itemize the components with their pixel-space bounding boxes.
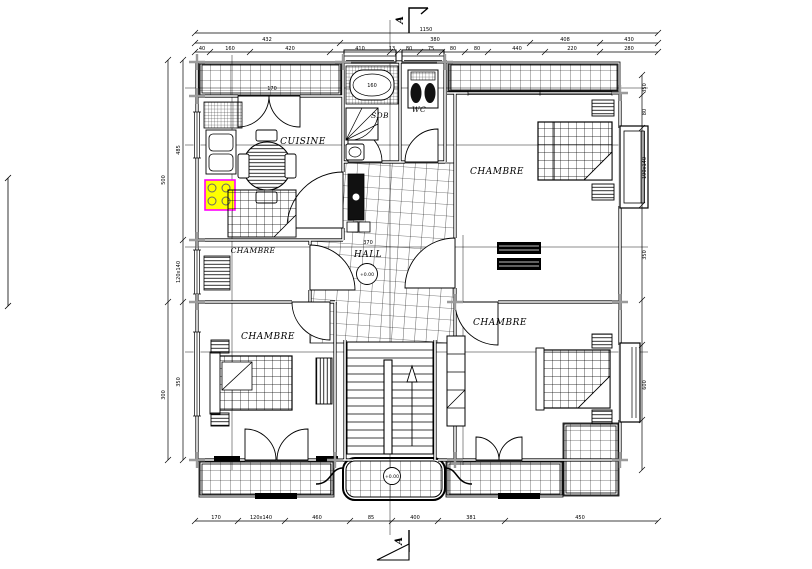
toilet-cistern (411, 72, 435, 80)
section-marker-bottom: A (377, 530, 409, 560)
dim-hall-width: 370 (363, 240, 373, 246)
hall-level-text: +0.00 (360, 272, 374, 278)
balcony-top-right-tiles (449, 64, 618, 91)
kitchen-counter (204, 102, 242, 128)
hall-level-marker: +0.00 (357, 264, 378, 285)
column-cross (612, 294, 628, 310)
entrance-level-marker: +0.00 (384, 468, 401, 485)
nightstand (592, 410, 612, 424)
svg-text:220: 220 (567, 46, 577, 52)
door-french-bl-leaf1 (245, 429, 276, 460)
wc-fixtures (408, 70, 438, 108)
door-balcony-left-leaf1 (238, 96, 269, 127)
label-wc: WC (412, 105, 426, 114)
doormat-terrace-left (255, 493, 297, 499)
door-chambre-bottom-left (292, 302, 330, 340)
svg-text:350: 350 (642, 250, 648, 260)
floor-plan-page: +0.00 +0.00 CUISINE SDB WC CHAMBRE CHAMB… (0, 0, 812, 569)
svg-text:170: 170 (211, 515, 221, 521)
svg-text:300: 300 (161, 390, 167, 400)
svg-text:410: 410 (355, 46, 365, 52)
svg-text:400: 400 (410, 515, 420, 521)
svg-text:160: 160 (225, 46, 235, 52)
svg-text:450: 450 (575, 515, 585, 521)
svg-text:80: 80 (450, 46, 456, 52)
nightstand (211, 413, 229, 426)
section-letter-top: A (395, 16, 406, 25)
svg-text:280: 280 (624, 46, 634, 52)
door-terrace-br-leaf1 (476, 437, 499, 460)
terrace-bottom-center-tiles (447, 462, 562, 495)
svg-text:350: 350 (176, 377, 182, 387)
radiator (204, 256, 230, 290)
door-terrace-br-leaf2 (499, 437, 522, 460)
svg-text:75: 75 (428, 46, 434, 52)
svg-text:600: 600 (642, 380, 648, 390)
nightstand (592, 334, 612, 348)
sill-bottom-left (214, 456, 240, 461)
dresser (497, 242, 541, 254)
toilet-bowl-2 (425, 83, 436, 103)
svg-text:80: 80 (406, 46, 412, 52)
svg-text:120x140: 120x140 (250, 515, 272, 521)
floor-plan-svg: +0.00 +0.00 CUISINE SDB WC CHAMBRE CHAMB… (0, 0, 812, 569)
svg-text:80: 80 (474, 46, 480, 52)
bed-top-right (497, 100, 614, 270)
terrace-bottom-left-tiles (200, 462, 333, 495)
column-cross (189, 294, 205, 310)
svg-text:432: 432 (262, 37, 272, 43)
window-left-chambre-bottom (193, 332, 201, 416)
toilet-bowl-1 (411, 83, 422, 103)
dim-bathtub: 160 (367, 83, 377, 89)
dining-table (243, 142, 291, 190)
entrance-level-text: +0.00 (385, 474, 399, 480)
label-chambre-top-right: CHAMBRE (470, 167, 524, 177)
svg-text:40: 40 (199, 46, 205, 52)
svg-text:485: 485 (176, 145, 182, 155)
svg-text:380: 380 (430, 37, 440, 43)
section-letter-bottom: A (394, 537, 405, 546)
svg-text:381: 381 (466, 515, 476, 521)
svg-text:430: 430 (624, 37, 634, 43)
kitchen-sink-unit (206, 130, 236, 174)
nightstand (592, 184, 614, 200)
door-balcony-left-leaf2 (269, 96, 300, 127)
bed-bottom-left (210, 340, 332, 426)
hall-appliance-knob (353, 194, 360, 201)
staircase (347, 342, 433, 454)
svg-text:460: 460 (312, 515, 322, 521)
door-french-bl-leaf2 (277, 429, 308, 460)
window-chambre-tr-front (468, 91, 612, 96)
svg-text:408: 408 (560, 37, 570, 43)
svg-text:13: 13 (389, 46, 395, 52)
label-cuisine: CUISINE (280, 137, 326, 147)
washbasin (346, 144, 364, 160)
wardrobe-unit (447, 336, 465, 426)
window-left-chambre-mid (193, 250, 201, 294)
door-wc (405, 129, 438, 162)
label-chambre-mid-left: CHAMBRE (231, 246, 276, 255)
bed-bottom-right (536, 334, 612, 424)
svg-text:190x140: 190x140 (642, 157, 648, 179)
svg-text:350: 350 (642, 83, 648, 93)
label-chambre-bottom-left: CHAMBRE (241, 332, 295, 342)
doormat-terrace-right (498, 493, 540, 499)
label-hall: HALL (353, 250, 382, 260)
window-left-kitchen (193, 112, 201, 158)
column-cross (189, 232, 205, 248)
dim-top-total: 1150 (420, 27, 433, 33)
dim-balcony: 170 (267, 86, 277, 92)
dresser (497, 258, 541, 270)
svg-text:120x140: 120x140 (176, 261, 182, 283)
nightstand (211, 340, 229, 353)
wardrobe-strip (316, 358, 332, 404)
svg-text:420: 420 (285, 46, 295, 52)
bay-window-right-lower (619, 343, 641, 422)
svg-text:80: 80 (642, 109, 648, 115)
label-sdb: SDB (371, 111, 389, 120)
svg-text:440: 440 (512, 46, 522, 52)
svg-text:500: 500 (161, 175, 167, 185)
left-chain-lines (168, 60, 183, 460)
svg-text:85: 85 (368, 515, 374, 521)
nightstand (592, 100, 614, 116)
label-chambre-bottom-right: CHAMBRE (473, 318, 527, 328)
stair-stringer (384, 360, 392, 454)
